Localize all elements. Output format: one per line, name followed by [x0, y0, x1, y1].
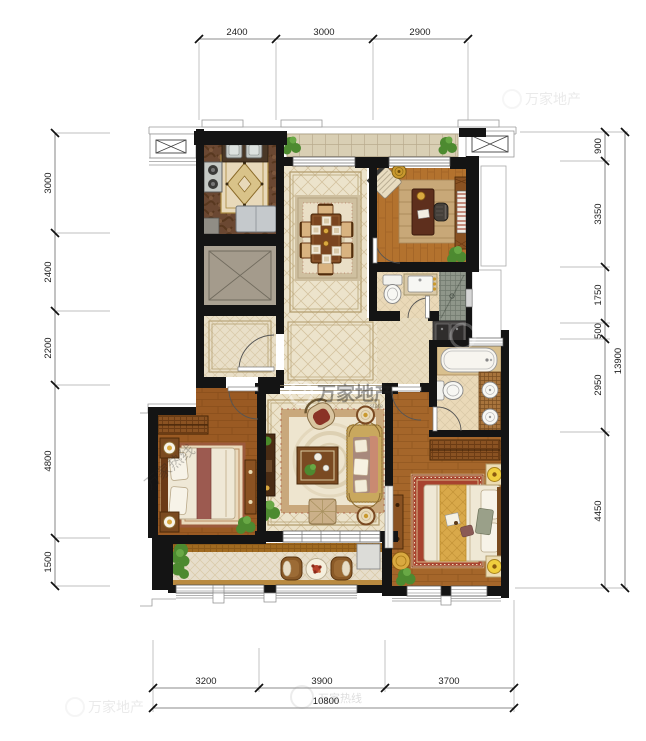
- svg-text:13900: 13900: [613, 348, 624, 374]
- svg-text:state: state: [370, 404, 384, 410]
- svg-text:万家地产: 万家地产: [88, 699, 144, 715]
- svg-text:万家热线: 万家热线: [318, 691, 362, 705]
- svg-text:1750: 1750: [593, 284, 604, 305]
- svg-text:3700: 3700: [438, 676, 459, 687]
- svg-text:1500: 1500: [43, 551, 54, 572]
- svg-text:2200: 2200: [43, 337, 54, 358]
- svg-text:500: 500: [593, 323, 604, 339]
- svg-text:万家地产: 万家地产: [525, 91, 581, 107]
- svg-text:4800: 4800: [43, 450, 54, 471]
- svg-text:3000: 3000: [313, 27, 334, 38]
- svg-text:3350: 3350: [593, 203, 604, 224]
- svg-text:3200: 3200: [195, 676, 216, 687]
- svg-text:4450: 4450: [593, 500, 604, 521]
- svg-text:万家地产: 万家地产: [316, 382, 393, 405]
- svg-text:2900: 2900: [409, 27, 430, 38]
- svg-text:2950: 2950: [593, 374, 604, 395]
- svg-text:2400: 2400: [226, 27, 247, 38]
- svg-text:3900: 3900: [311, 676, 332, 687]
- svg-text:2400: 2400: [43, 261, 54, 282]
- svg-text:900: 900: [593, 138, 604, 154]
- svg-text:3000: 3000: [43, 172, 54, 193]
